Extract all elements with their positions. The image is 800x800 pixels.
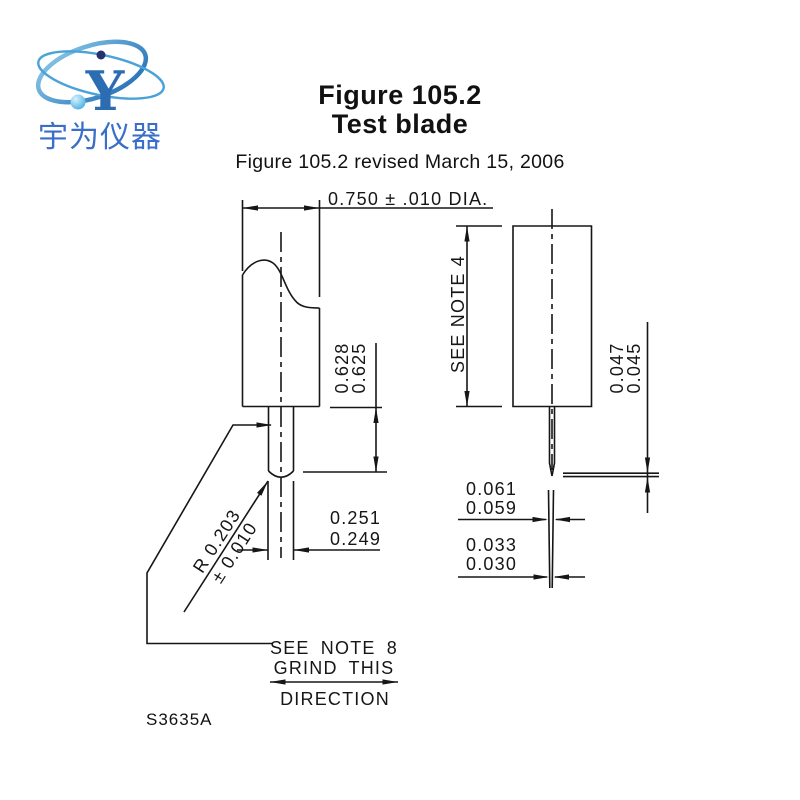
tip-thickness-min: 0.045	[626, 342, 643, 393]
blade-length-min: 0.625	[351, 342, 368, 393]
edge-width-upper-max: 0.061	[466, 480, 517, 499]
technical-drawing	[0, 0, 800, 800]
grind-note-line1: SEE NOTE 8	[270, 639, 398, 659]
dimension-arrowheads	[243, 205, 651, 684]
blade-width-min: 0.249	[330, 529, 381, 550]
edge-width-lower-max: 0.033	[466, 536, 517, 555]
grind-note-line2: GRIND THIS	[270, 659, 398, 679]
blade-length-dimension: 0.628 0.625	[334, 342, 368, 393]
edge-width-upper-min: 0.059	[466, 499, 517, 518]
diameter-dimension-label: 0.750 ± .010 DIA.	[328, 189, 488, 209]
side-view-dimension-lines	[456, 226, 659, 577]
figure-page: Y 宇为仪器 Figure 105.2 Test blade Figure 10…	[0, 0, 800, 800]
grind-note-direction: DIRECTION	[280, 690, 390, 710]
tip-thickness-dimension: 0.047 0.045	[609, 342, 643, 393]
shank-note-label: SEE NOTE 4	[448, 255, 468, 373]
edge-width-lower-min: 0.030	[466, 555, 517, 574]
blade-width-max: 0.251	[330, 508, 381, 529]
grind-note: SEE NOTE 8 GRIND THIS	[270, 639, 398, 678]
edge-width-upper-dimension: 0.061 0.059	[466, 480, 517, 518]
blade-width-dimension: 0.251 0.249	[330, 508, 381, 550]
front-view-dimension-lines	[147, 200, 493, 644]
drawing-number: S3635A	[146, 710, 213, 730]
edge-width-lower-dimension: 0.033 0.030	[466, 536, 517, 574]
edge-detail-lines	[549, 490, 554, 588]
